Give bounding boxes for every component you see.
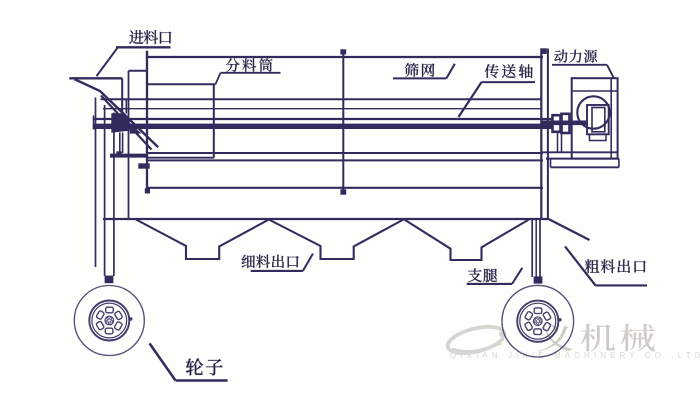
svg-text:QIXIAN JIXIE MACHINERY CO.,LT: QIXIAN JIXIE MACHINERY CO.,LTD [450,351,700,360]
